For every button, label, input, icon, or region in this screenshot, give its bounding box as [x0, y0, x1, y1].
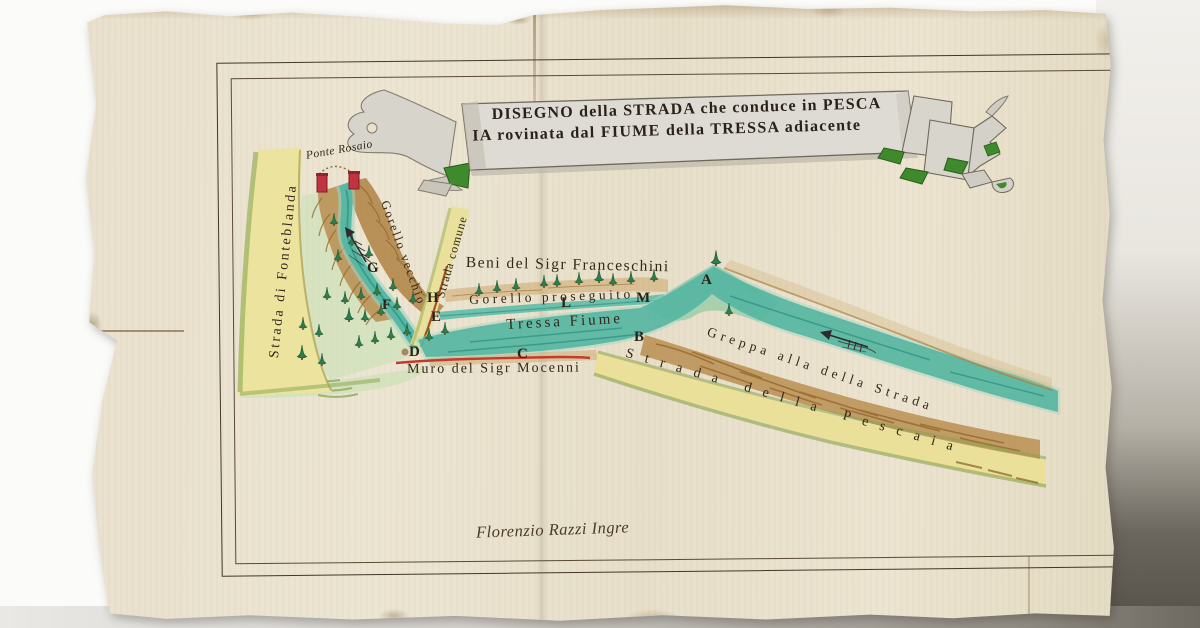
tree-icon: [711, 250, 721, 266]
title-banner-ribbon: [348, 90, 1014, 196]
map-artwork: [0, 0, 1200, 628]
photo-of-manuscript-map: DISEGNO della STRADA che conduce in PESC…: [0, 0, 1200, 628]
confluence-blotch: [402, 349, 409, 356]
